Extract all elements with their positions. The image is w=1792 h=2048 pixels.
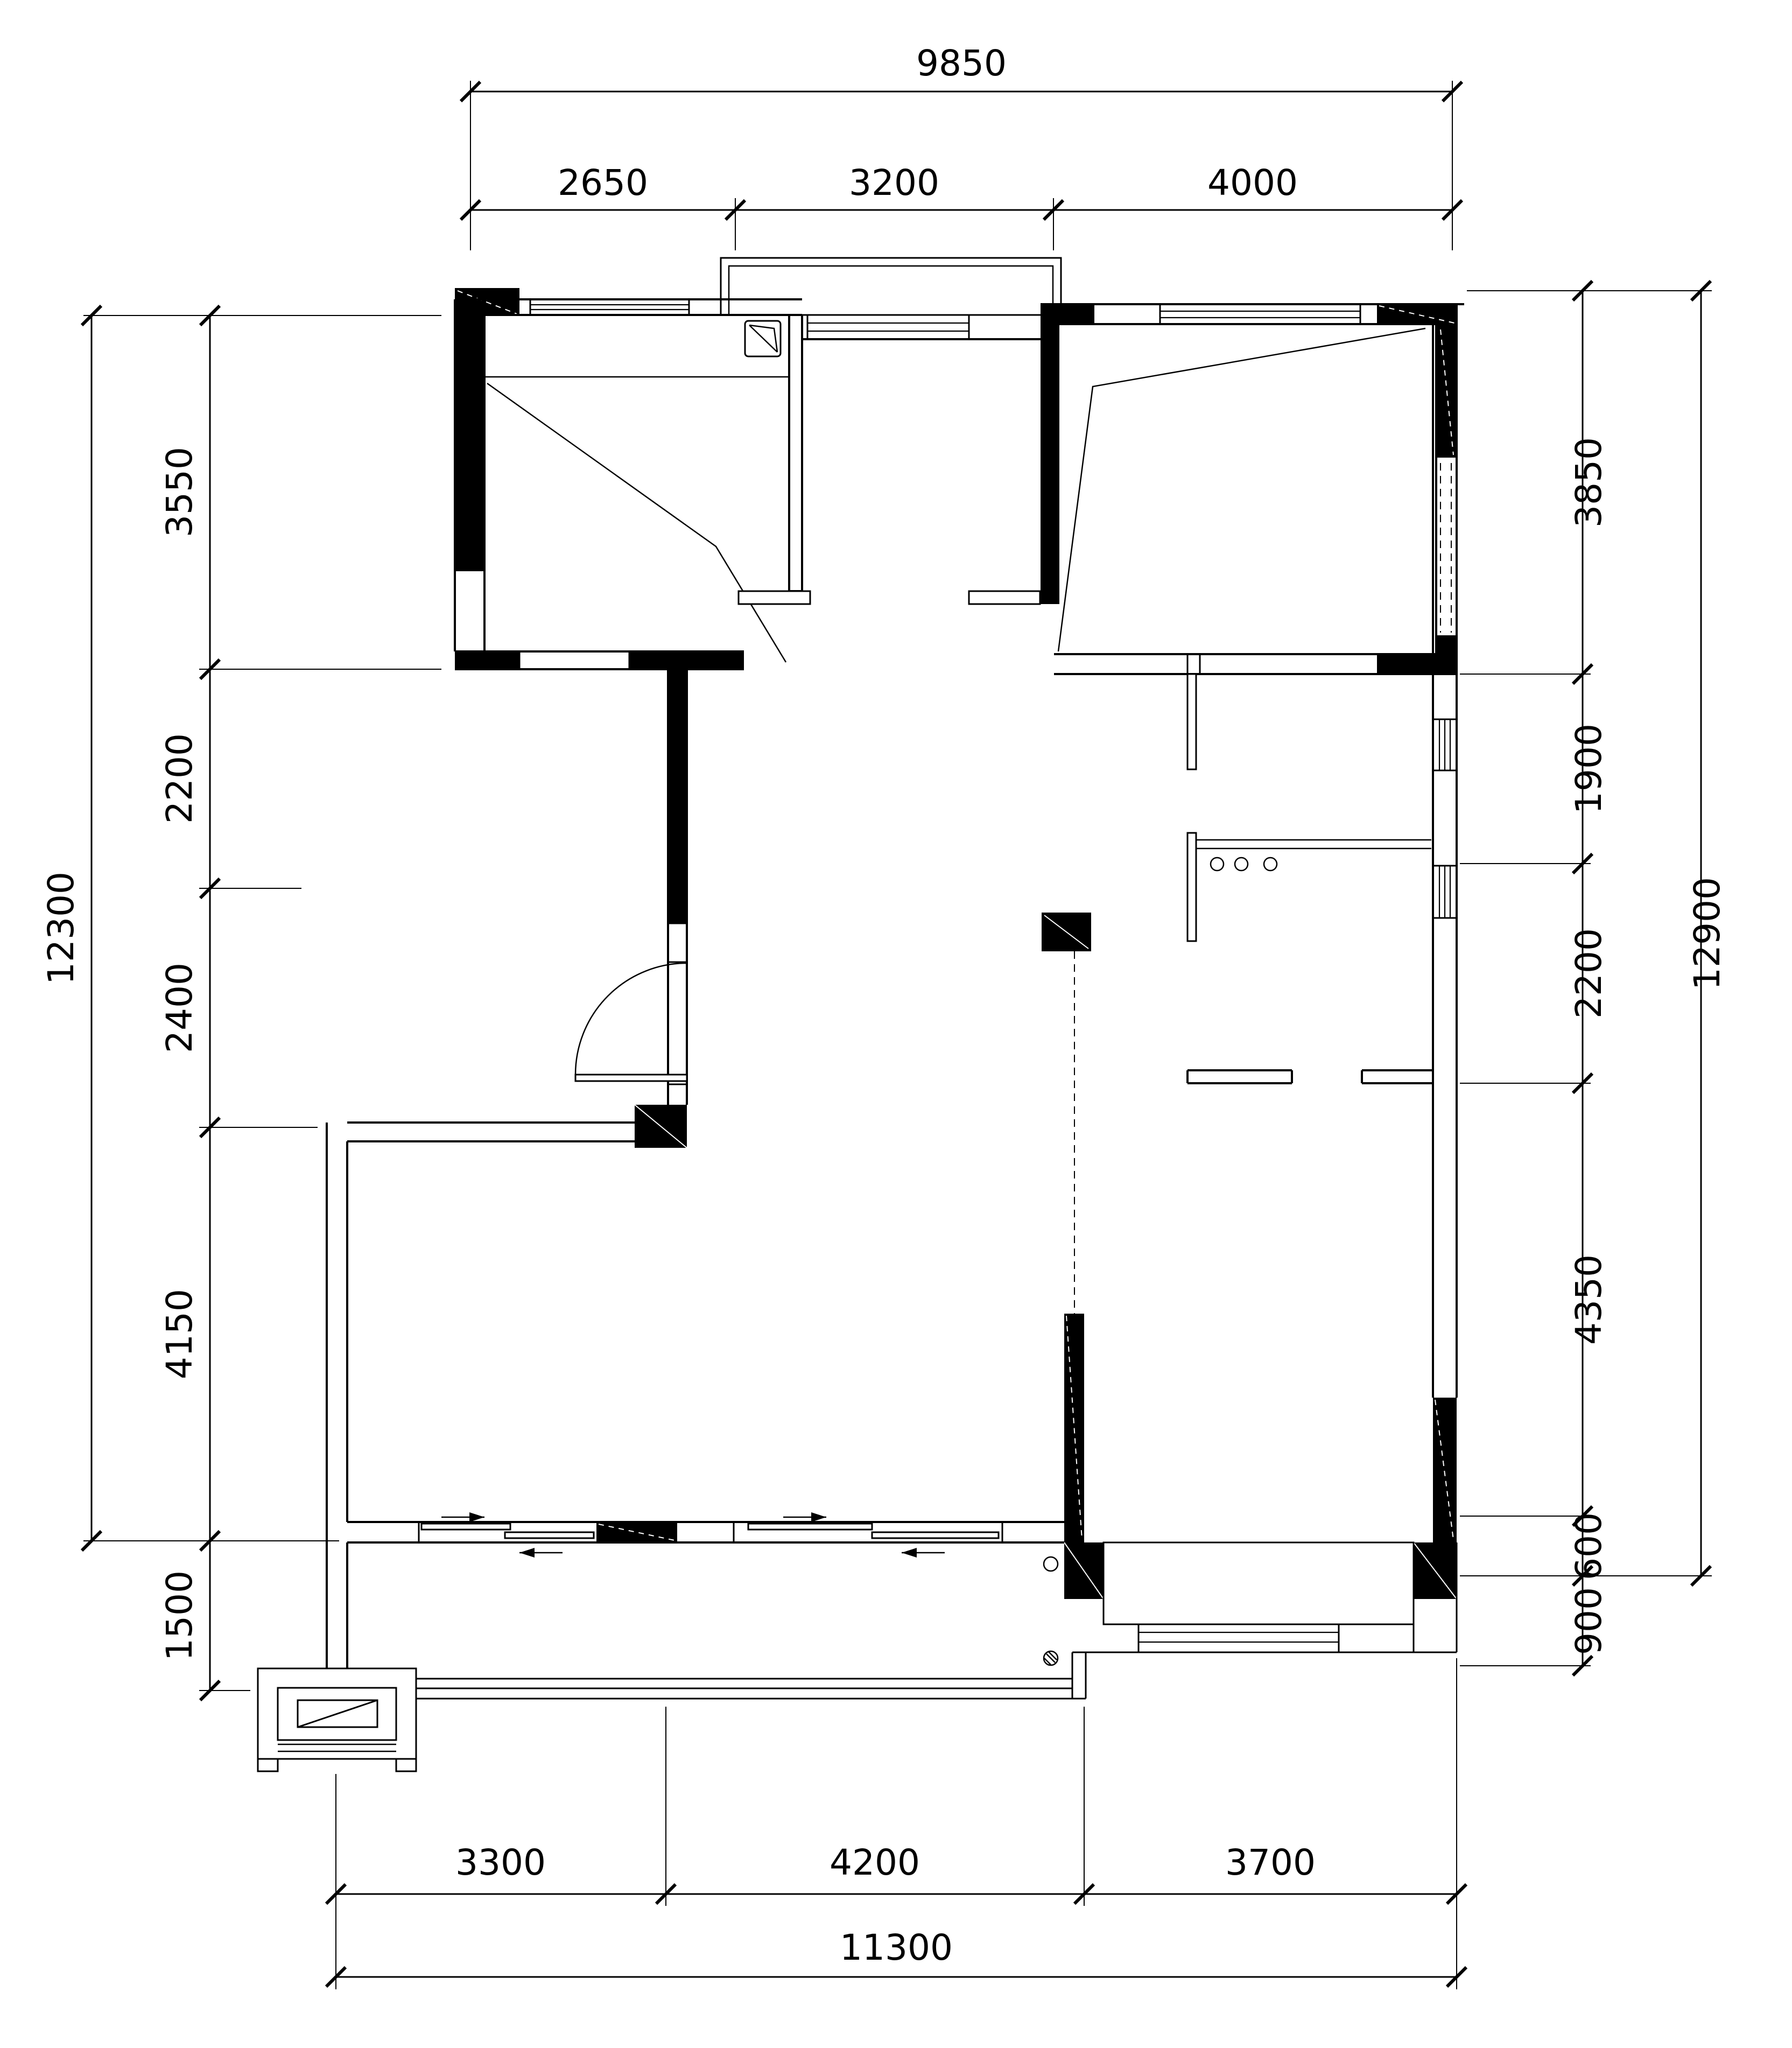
sliding-panel	[421, 1524, 510, 1530]
dim-top-segment-2: 4000	[1207, 162, 1298, 204]
arrow-left-icon	[902, 1548, 917, 1558]
burner-circle	[1211, 858, 1224, 871]
balcony	[416, 1557, 1086, 1699]
dim-bottom-overall: 11300	[840, 1927, 953, 1968]
door-leaf	[575, 1075, 687, 1081]
flue-shaft	[745, 321, 781, 356]
arrow-right-icon	[811, 1512, 826, 1522]
dim-top-segment-0: 2650	[558, 162, 648, 204]
wardrobe-lines	[487, 383, 786, 662]
window-glazing	[1139, 1632, 1339, 1642]
window-glazing	[1439, 866, 1450, 918]
dim-left-segment-2: 2400	[159, 963, 200, 1053]
bay-window-bottom-right	[1072, 951, 1457, 1652]
counter-edge	[1196, 840, 1431, 848]
dim-right-segment-3: 4350	[1568, 1254, 1610, 1345]
dim-left-segment-1: 2200	[159, 733, 200, 824]
dim-right-segment-0: 3850	[1568, 437, 1610, 528]
floor-plan-drawing: 9850 2650 3200 4000 12300 3550 2200 2400…	[0, 0, 1792, 2048]
dim-left-segment-0: 3550	[159, 447, 200, 537]
top-bay-window	[721, 258, 1061, 604]
dim-right-segment-5: 900	[1568, 1587, 1610, 1655]
floor-plan-sheet: 9850 2650 3200 4000 12300 3550 2200 2400…	[0, 0, 1792, 2048]
window-glazing	[1439, 719, 1450, 770]
bedroom-top-left	[455, 299, 802, 669]
dim-right-segment-4: 600	[1568, 1512, 1610, 1580]
dim-left-segment-3: 4150	[159, 1289, 200, 1379]
dim-top-overall: 9850	[916, 43, 1007, 84]
burner-circle	[1264, 858, 1277, 871]
burner-circle	[1235, 858, 1248, 871]
door-swing-arc	[575, 963, 687, 1075]
arrow-left-icon	[519, 1548, 535, 1558]
sliding-panel	[748, 1524, 872, 1530]
dim-bottom-segment-2: 3700	[1225, 1842, 1316, 1883]
dim-right-segment-1: 1900	[1568, 724, 1610, 814]
bedroom-top-right	[1041, 304, 1464, 674]
balcony-sliding-wall	[347, 1512, 1064, 1558]
entry-door	[327, 669, 687, 1668]
shaft-box	[258, 1668, 416, 1771]
dim-right-overall: 12900	[1686, 877, 1728, 990]
kitchen	[1187, 674, 1433, 1083]
dim-left-segment-4: 1500	[159, 1570, 200, 1661]
dimension-lines: 9850 2650 3200 4000 12300 3550 2200 2400…	[40, 43, 1728, 1989]
sliding-panel	[505, 1532, 594, 1538]
dim-right-segment-2: 2200	[1568, 928, 1610, 1019]
dim-top-segment-1: 3200	[849, 162, 939, 204]
wardrobe-lines	[1058, 328, 1425, 651]
dim-bottom-segment-1: 4200	[830, 1842, 920, 1883]
dim-left-overall: 12300	[40, 872, 82, 985]
dim-bottom-segment-0: 3300	[455, 1842, 546, 1883]
structural-columns	[455, 288, 1457, 1599]
arrow-right-icon	[469, 1512, 484, 1522]
sliding-panel	[872, 1532, 999, 1538]
floor-drain-icon	[1044, 1557, 1058, 1571]
